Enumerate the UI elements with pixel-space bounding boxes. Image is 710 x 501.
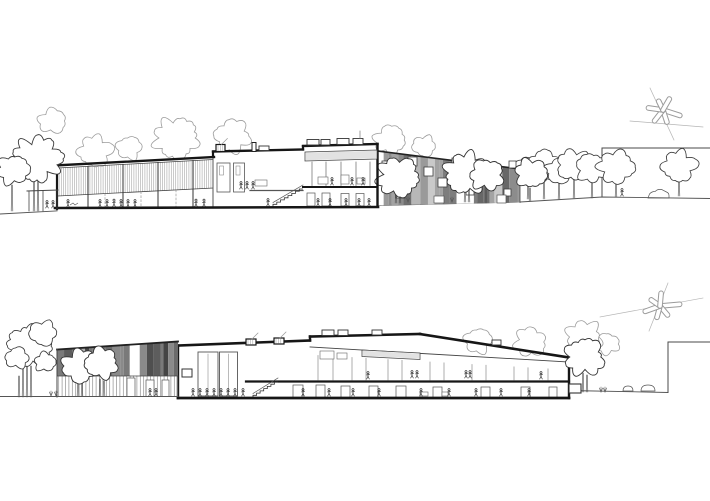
rooftop-unit (259, 146, 269, 151)
person-figure (99, 200, 102, 207)
shrub (49, 391, 52, 396)
ground-marking (70, 203, 78, 205)
architectural-sections-canvas (0, 0, 710, 501)
rooftop-unit (322, 330, 334, 336)
rooftop-unit (337, 139, 349, 145)
person-figure (52, 201, 55, 208)
person-figure (106, 200, 109, 207)
person-figure (267, 199, 270, 206)
person-figure (134, 200, 137, 207)
wind-sculpture (600, 283, 703, 331)
person-figure (317, 199, 320, 206)
person-figure (127, 200, 130, 207)
staircase (273, 185, 303, 207)
person-figure (120, 200, 123, 207)
person-figure (540, 372, 543, 379)
street-figures (621, 189, 624, 196)
person-figure (465, 371, 468, 378)
person-figure (113, 199, 116, 206)
person-figure (67, 200, 70, 207)
person-figure (416, 371, 419, 378)
person-figure (192, 389, 195, 396)
clerestory-band (305, 150, 377, 161)
upper-section-drawing (0, 88, 710, 214)
person-figure (475, 389, 478, 396)
person-figure (242, 389, 245, 396)
person-figure (203, 199, 206, 206)
person-figure (352, 389, 355, 396)
rooftop-unit (338, 330, 348, 336)
clerestory-band (362, 350, 420, 360)
person-figure (469, 371, 472, 378)
person-figure (246, 182, 249, 189)
ground-floor-figures (302, 389, 531, 396)
rooftop-unit (321, 140, 330, 146)
person-figure (500, 389, 503, 396)
rooftop-unit (372, 330, 382, 335)
left-tree (5, 320, 57, 397)
left-trees (0, 135, 65, 211)
wind-sculpture (630, 88, 703, 140)
person-figure (621, 189, 624, 196)
person-figure (351, 178, 354, 185)
car-sketch (648, 189, 669, 198)
person-figure (368, 199, 371, 206)
roof-skylight (216, 139, 227, 152)
lower-section-drawing (0, 283, 710, 398)
front-tree-canopy (564, 338, 605, 376)
drawing-sheet (0, 0, 710, 501)
roof-skylight (274, 332, 286, 344)
person-figure (195, 199, 198, 206)
person-figure (411, 371, 414, 378)
person-figure (328, 389, 331, 396)
retaining-wall (668, 342, 710, 393)
boulder (623, 386, 633, 391)
rooftop-unit (492, 340, 501, 345)
person-figure (252, 182, 255, 189)
left-tree-canopy (5, 320, 57, 371)
ground-line-left (0, 211, 56, 214)
stair-figures (267, 199, 270, 206)
upper-floor-figures (367, 371, 543, 379)
person-figure (331, 178, 334, 185)
rooftop-unit (353, 139, 363, 145)
left-tree-canopies (0, 135, 65, 186)
person-figure (46, 201, 49, 208)
building-section (178, 330, 581, 398)
boulder (641, 385, 655, 391)
roof-skylight (246, 333, 258, 345)
rooftop-unit (307, 140, 319, 146)
person-figure (367, 372, 370, 379)
